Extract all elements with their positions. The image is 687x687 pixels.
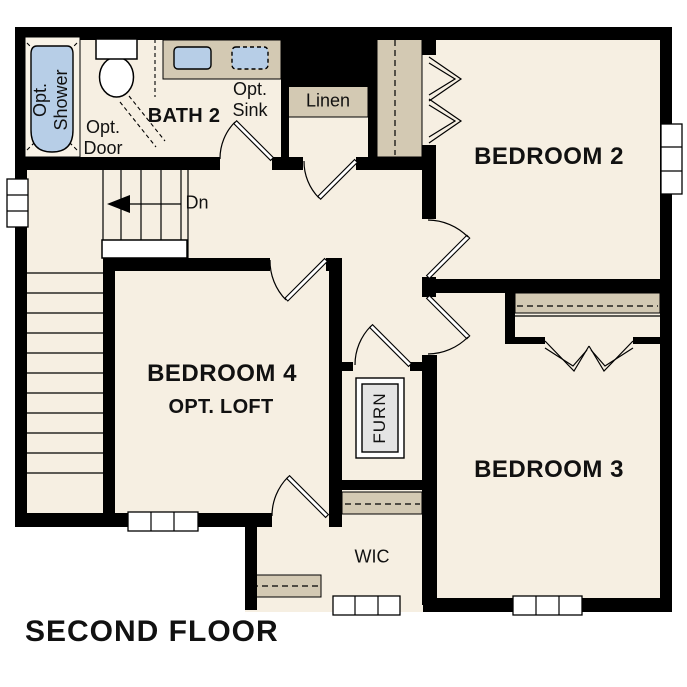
opt-sink-line1: Opt.	[232, 79, 267, 100]
floor-plan-canvas: Opt. Shower Opt. Door BATH 2 Opt. Sink L…	[0, 0, 687, 687]
opt-shower-label: Opt. Shower	[30, 69, 72, 130]
stair-direction-label: Dn	[185, 192, 208, 213]
opt-loft-label: OPT. LOFT	[169, 396, 274, 420]
wic-shelf-top	[342, 492, 422, 514]
furnace-label: FURN	[370, 392, 390, 443]
optional-sink	[232, 47, 268, 69]
bedroom3-label: BEDROOM 3	[474, 456, 624, 484]
opt-sink-line2: Sink	[232, 100, 267, 121]
window-bedroom2	[661, 124, 682, 194]
bath2-label: BATH 2	[148, 105, 221, 129]
toilet	[96, 39, 137, 97]
stair-landing	[102, 240, 187, 258]
bedroom3-closet-shelf	[515, 293, 660, 313]
opt-shower-line2: Shower	[51, 69, 72, 130]
vanity-sink	[174, 47, 211, 69]
bedroom2-closet-shelf	[377, 37, 422, 157]
window-bedroom4	[128, 512, 198, 531]
window-bedroom3	[513, 596, 582, 615]
opt-door-label: Opt. Door	[83, 117, 122, 159]
wic-label: WIC	[355, 546, 390, 567]
opt-sink-label: Opt. Sink	[232, 79, 267, 121]
opt-door-line2: Door	[83, 138, 122, 159]
window-wic	[333, 596, 400, 615]
window-left	[7, 179, 28, 227]
floor-title: SECOND FLOOR	[25, 615, 279, 649]
opt-shower-line1: Opt.	[30, 69, 51, 130]
opt-door-line1: Opt.	[83, 117, 122, 138]
linen-label: Linen	[306, 90, 350, 111]
bedroom4-label: BEDROOM 4	[147, 360, 297, 388]
bedroom2-label: BEDROOM 2	[474, 143, 624, 171]
